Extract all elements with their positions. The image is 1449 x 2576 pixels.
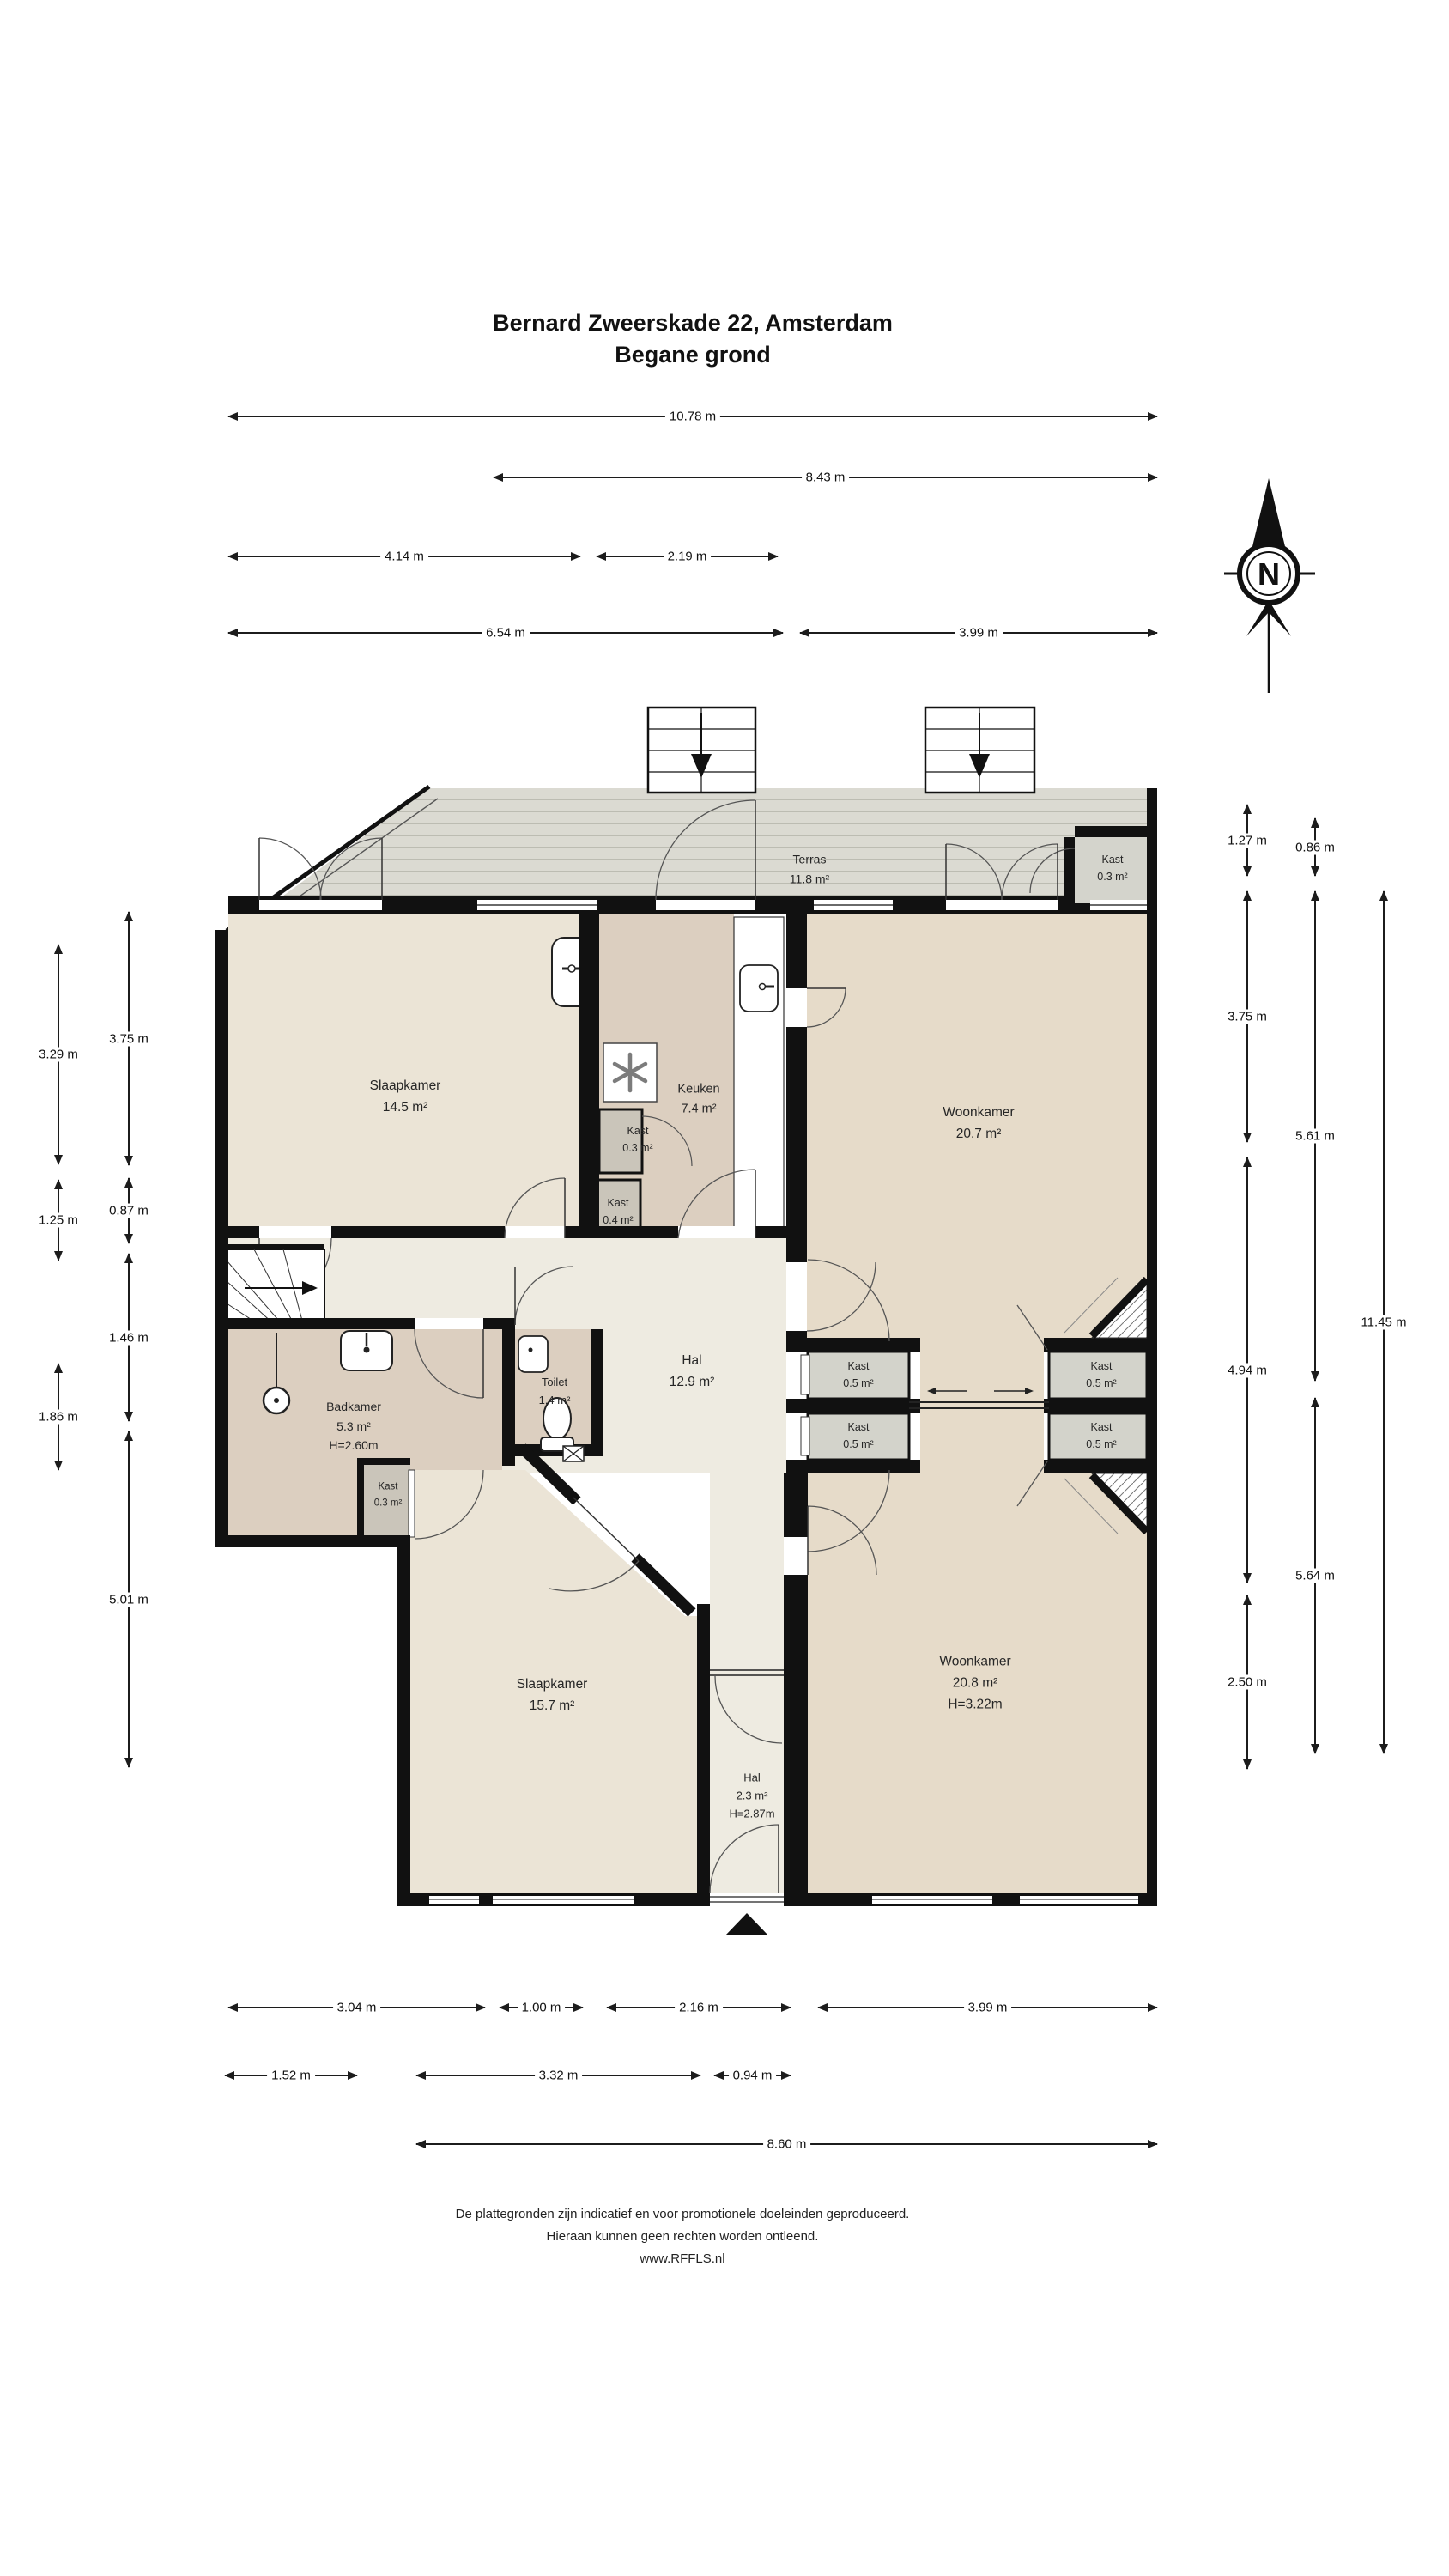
- dimension-label: 2.50 m: [1223, 1675, 1271, 1690]
- room-label-badkamer: Badkamer5.3 m²H=2.60m: [326, 1397, 381, 1455]
- dimension-bottom-1: 1.00 m: [500, 2007, 583, 2008]
- dimension-top-5: 3.99 m: [800, 632, 1157, 634]
- room-label-badkamer-line: Badkamer: [326, 1397, 381, 1417]
- dimension-label: 8.60 m: [763, 2137, 811, 2152]
- dimension-label: 0.87 m: [105, 1204, 153, 1218]
- room-label-woonkamer-2: Woonkamer20.8 m²H=3.22m: [939, 1650, 1010, 1715]
- dimension-top-3: 2.19 m: [597, 556, 778, 557]
- dimension-right-3: 2.50 m: [1246, 1595, 1248, 1769]
- room-label-keuken-line: 7.4 m²: [677, 1100, 719, 1120]
- dimension-label: 6.54 m: [482, 626, 530, 641]
- room-label-toilet-line: Toilet: [539, 1373, 571, 1391]
- slaapkamer-1-floor: [228, 914, 579, 1226]
- room-label-kast-links-1: Kast0.5 m²: [843, 1358, 873, 1393]
- dimension-label: 8.43 m: [802, 471, 850, 485]
- dimension-label: 3.04 m: [333, 2001, 381, 2015]
- dimension-left-6: 5.01 m: [128, 1431, 130, 1767]
- dimension-label: 5.64 m: [1291, 1569, 1339, 1583]
- room-label-woonkamer-1: Woonkamer20.7 m²: [943, 1102, 1014, 1145]
- dimension-label: 1.27 m: [1223, 833, 1271, 848]
- dimension-left-5: 1.46 m: [128, 1254, 130, 1421]
- room-label-kast-rechts-2-line: 0.5 m²: [1086, 1436, 1116, 1453]
- dimension-top-0: 10.78 m: [228, 416, 1157, 417]
- room-label-badkamer-line: H=2.60m: [326, 1436, 381, 1455]
- room-label-hal-2: Hal2.3 m²H=2.87m: [729, 1768, 774, 1822]
- dimension-label: 1.86 m: [34, 1410, 82, 1425]
- dimension-bottom-3: 3.99 m: [818, 2007, 1157, 2008]
- dimension-label: 4.14 m: [380, 550, 428, 564]
- dimension-left-0: 3.29 m: [58, 945, 59, 1164]
- dimension-right-7: 11.45 m: [1383, 891, 1385, 1753]
- room-label-woonkamer-2-line: Woonkamer: [939, 1650, 1010, 1672]
- floorplan-page: Bernard Zweerskade 22, Amsterdam Begane …: [0, 0, 1449, 2576]
- dimension-label: 1.00 m: [518, 2001, 566, 2015]
- north-compass-icon: N: [1224, 478, 1315, 693]
- room-label-kast-links-2-line: 0.5 m²: [843, 1436, 873, 1453]
- room-label-kast-rechts-2-line: Kast: [1086, 1419, 1116, 1436]
- dimension-top-1: 8.43 m: [494, 477, 1157, 478]
- floor-plan-drawing: N: [0, 0, 1449, 2576]
- room-label-kast-links-2: Kast0.5 m²: [843, 1419, 873, 1454]
- dimension-label: 10.78 m: [665, 410, 720, 424]
- room-label-hal-2-line: 2.3 m²: [729, 1786, 774, 1804]
- room-label-woonkamer-2-line: 20.8 m²: [939, 1672, 1010, 1693]
- room-label-slaapkamer-1-line: Slaapkamer: [370, 1075, 441, 1097]
- room-label-kast-links-1-line: Kast: [843, 1358, 873, 1375]
- room-label-slaapkamer-2-line: 15.7 m²: [517, 1695, 588, 1716]
- dimension-label: 1.25 m: [34, 1213, 82, 1228]
- room-label-hal-2-line: H=2.87m: [729, 1805, 774, 1823]
- room-label-kast-04: Kast0.4 m²: [603, 1194, 633, 1230]
- dimension-label: 3.75 m: [1223, 1010, 1271, 1024]
- dimension-bottom-6: 0.94 m: [714, 2075, 791, 2076]
- room-label-hal-2-line: Hal: [729, 1768, 774, 1786]
- room-label-kast-badkamer: Kast0.3 m²: [374, 1479, 403, 1510]
- room-label-slaapkamer-2: Slaapkamer15.7 m²: [517, 1674, 588, 1716]
- dimension-bottom-0: 3.04 m: [228, 2007, 485, 2008]
- dimension-top-2: 4.14 m: [228, 556, 580, 557]
- room-label-kast-badkamer-line: 0.3 m²: [374, 1495, 403, 1511]
- dimension-label: 2.19 m: [664, 550, 712, 564]
- dimension-label: 3.75 m: [105, 1031, 153, 1046]
- room-label-kast-terras-line: Kast: [1097, 851, 1127, 868]
- room-label-keuken-line: Keuken: [677, 1080, 719, 1100]
- room-label-terras: Terras11.8 m²: [790, 849, 829, 888]
- dimension-label: 5.61 m: [1291, 1129, 1339, 1144]
- dimension-right-4: 0.86 m: [1314, 818, 1316, 876]
- dimension-right-6: 5.64 m: [1314, 1398, 1316, 1753]
- room-label-kast-04-line: 0.4 m²: [603, 1212, 633, 1229]
- dimension-right-2: 4.94 m: [1246, 1157, 1248, 1583]
- dimension-top-4: 6.54 m: [228, 632, 783, 634]
- footer-line-3: www.RFFLS.nl: [456, 2248, 910, 2270]
- dimension-left-1: 1.25 m: [58, 1180, 59, 1261]
- room-label-toilet-line: 1.4 m²: [539, 1391, 571, 1409]
- room-label-kast-keuken-line: Kast: [622, 1122, 652, 1139]
- dimension-label: 5.01 m: [105, 1592, 153, 1607]
- room-label-hal-1: Hal12.9 m²: [670, 1350, 715, 1393]
- room-label-badkamer-line: 5.3 m²: [326, 1417, 381, 1437]
- dimension-bottom-7: 8.60 m: [416, 2143, 1157, 2145]
- room-label-kast-terras-line: 0.3 m²: [1097, 868, 1127, 885]
- dimension-label: 0.86 m: [1291, 840, 1339, 854]
- dimension-label: 4.94 m: [1223, 1363, 1271, 1377]
- dimension-label: 3.99 m: [955, 626, 1003, 641]
- dimension-label: 3.32 m: [535, 2069, 583, 2083]
- dimension-label: 3.99 m: [964, 2001, 1012, 2015]
- exterior-stairs-right: [925, 708, 1034, 793]
- room-label-kast-keuken-line: 0.3 m²: [622, 1139, 652, 1157]
- room-label-toilet: Toilet1.4 m²: [539, 1373, 571, 1409]
- room-label-slaapkamer-1-line: 14.5 m²: [370, 1097, 441, 1118]
- entrance-arrow-icon: [725, 1913, 768, 1935]
- dimension-bottom-4: 1.52 m: [225, 2075, 357, 2076]
- room-label-slaapkamer-2-line: Slaapkamer: [517, 1674, 588, 1695]
- footer-line-1: De plattegronden zijn indicatief en voor…: [456, 2203, 910, 2226]
- room-label-kast-rechts-1-line: 0.5 m²: [1086, 1375, 1116, 1392]
- compass-n-label: N: [1258, 556, 1280, 592]
- room-label-slaapkamer-1: Slaapkamer14.5 m²: [370, 1075, 441, 1118]
- exterior-stairs-left: [648, 708, 755, 793]
- room-label-kast-keuken: Kast0.3 m²: [622, 1122, 652, 1157]
- room-label-woonkamer-2-line: H=3.22m: [939, 1694, 1010, 1716]
- footer-line-2: Hieraan kunnen geen rechten worden ontle…: [456, 2226, 910, 2248]
- room-label-terras-line: 11.8 m²: [790, 869, 829, 889]
- dimension-bottom-5: 3.32 m: [416, 2075, 700, 2076]
- room-label-keuken: Keuken7.4 m²: [677, 1080, 719, 1121]
- room-label-woonkamer-1-line: Woonkamer: [943, 1102, 1014, 1123]
- dimension-label: 0.94 m: [729, 2069, 777, 2083]
- room-label-kast-rechts-1-line: Kast: [1086, 1358, 1116, 1375]
- dimension-right-5: 5.61 m: [1314, 891, 1316, 1381]
- room-label-woonkamer-1-line: 20.7 m²: [943, 1123, 1014, 1145]
- room-label-hal-1-line: 12.9 m²: [670, 1371, 715, 1393]
- dimension-right-0: 1.27 m: [1246, 805, 1248, 876]
- room-label-kast-links-2-line: Kast: [843, 1419, 873, 1436]
- dimension-label: 2.16 m: [675, 2001, 723, 2015]
- dimension-right-1: 3.75 m: [1246, 891, 1248, 1142]
- room-label-terras-line: Terras: [790, 849, 829, 869]
- dimension-bottom-2: 2.16 m: [607, 2007, 791, 2008]
- dimension-left-2: 1.86 m: [58, 1364, 59, 1470]
- dimension-label: 3.29 m: [34, 1048, 82, 1062]
- room-label-kast-terras: Kast0.3 m²: [1097, 851, 1127, 886]
- room-label-kast-links-1-line: 0.5 m²: [843, 1375, 873, 1392]
- dimension-left-4: 0.87 m: [128, 1178, 130, 1243]
- room-label-kast-rechts-2: Kast0.5 m²: [1086, 1419, 1116, 1454]
- dimension-label: 11.45 m: [1356, 1315, 1410, 1330]
- room-label-kast-badkamer-line: Kast: [374, 1479, 403, 1495]
- room-label-hal-1-line: Hal: [670, 1350, 715, 1371]
- room-label-kast-rechts-1: Kast0.5 m²: [1086, 1358, 1116, 1393]
- disclaimer-footer: De plattegronden zijn indicatief en voor…: [456, 2203, 910, 2270]
- room-label-kast-04-line: Kast: [603, 1194, 633, 1212]
- dimension-left-3: 3.75 m: [128, 912, 130, 1165]
- dimension-label: 1.46 m: [105, 1330, 153, 1345]
- dimension-label: 1.52 m: [267, 2069, 315, 2083]
